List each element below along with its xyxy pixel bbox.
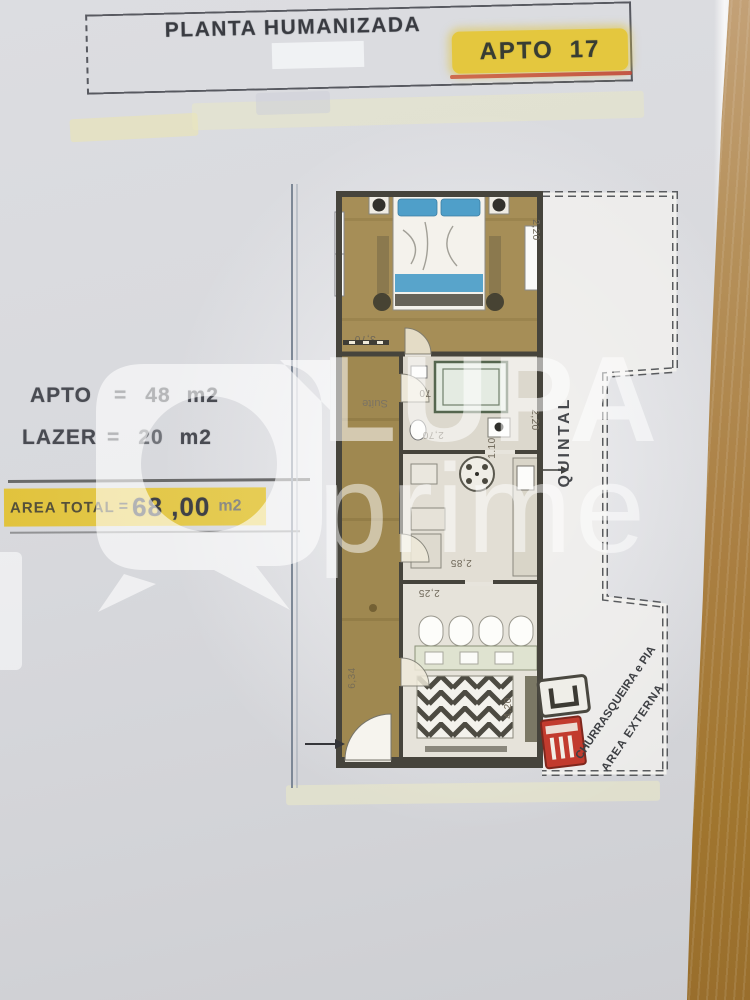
total-value: 68 ,00 [132,491,210,522]
dining-chair [449,616,473,646]
gray-patch [256,91,331,115]
chevron-rug [417,676,513,738]
equals-sign: = [119,498,128,516]
total-area-highlight: AREA TOTAL = 68 ,00 m2 [4,487,266,526]
plant [489,236,501,294]
total-label: AREA TOTAL [10,499,115,517]
tv-rack [425,746,507,752]
dining-chair [509,616,533,646]
dim-bath-inner: 1.10 [487,437,498,458]
dim-kitchen-inner: 2,25 [418,587,439,598]
pia-sink-icon [538,675,590,717]
double-bed [393,196,485,310]
row-unit: m2 [180,426,212,450]
row-unit: m2 [187,384,219,408]
quintal-label: QUINTAL [556,397,573,488]
floor-plan-drawing: 3,70 2,20 70 2,70 2,20 1.10 2,85 2,25 4,… [285,178,685,793]
row-label: LAZER [22,426,97,450]
apartment-number-highlight: APTO 17 [452,28,629,74]
dim-bath-depth: 2,20 [529,409,540,430]
plant [377,236,389,294]
apartment-label: APTO [479,37,554,67]
dining-chair [479,616,503,646]
dim-door: 70 [419,387,431,398]
kitchen-sink [517,466,534,490]
dim-living-depth: 4,20 [503,697,514,718]
dim-bath-width: 2,70 [422,429,443,440]
lot-boundary-left [292,184,297,788]
area-row-apto: APTO = 48 m2 [30,384,219,408]
row-value: 48 [145,384,170,408]
kitchen-table [411,464,437,484]
bath-sink [411,366,427,378]
correction-patch [272,41,365,69]
dim-kitchen-width: 2,85 [450,557,471,568]
dim-suite-depth: 2,20 [530,219,541,240]
total-unit: m2 [218,497,241,515]
cabinet [411,508,445,530]
suite-label: Suíte [362,397,388,409]
row-value: 20 [138,426,163,450]
area-row-lazer: LAZER = 20 m2 [22,426,212,450]
equals-sign: = [107,426,120,450]
equals-sign: = [114,384,127,408]
row-label: APTO [30,384,104,408]
photo-of-floor-plan-document: PLANTA HUMANIZADA APTO 17 APTO = 48 m2 L… [0,0,750,1000]
plant [486,293,504,311]
shelf [525,676,538,742]
suite-room [335,194,540,354]
plant [373,293,391,311]
hallway [339,354,401,760]
dining-chair [419,616,443,646]
dim-hall-length: 6,34 [347,667,358,688]
apartment-number: 17 [569,36,600,65]
lamp [373,199,386,212]
lamp [493,199,506,212]
